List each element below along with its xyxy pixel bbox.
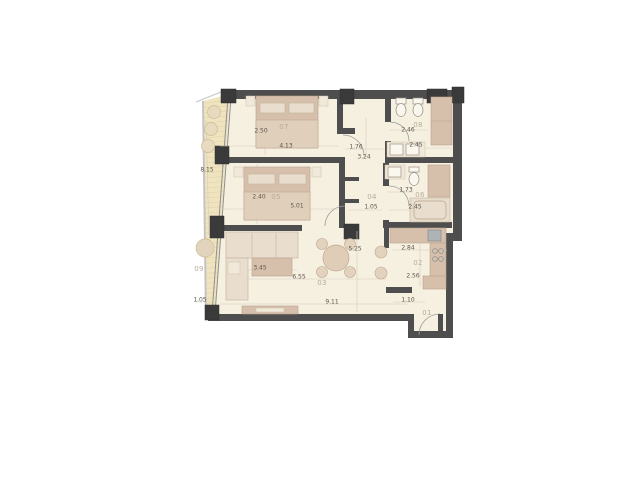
bidet-icon [413,98,423,117]
room-label-02: 02 [413,259,423,267]
bed-07-icon [246,96,328,148]
dim-173: 1.73 [399,187,412,194]
wardrobe-06-icon [428,165,450,197]
dim-911: 9.11 [325,299,338,306]
dim-256: 2.56 [406,273,419,280]
floor-plan-canvas: 2.50 4.13 07 2.46 2.45 08 1.76 3.24 1.05… [0,0,640,480]
side-table-icon [228,262,240,274]
sink-06-icon [385,165,405,179]
toilet-06-icon [409,167,419,186]
dim-240: 2.40 [252,194,265,201]
dim-345: 3.45 [253,265,266,272]
room-label-04: 04 [367,193,377,201]
toilet-icon [396,98,406,117]
dim-105-corridor: 1.05 [364,204,377,211]
dim-250: 2.50 [254,128,267,135]
dim-525: 5.25 [348,246,361,253]
dim-245-upper: 2.45 [409,142,422,149]
balcony-table-icon [196,239,214,257]
floor-plan-drawing [0,0,640,480]
dim-105-balcony: 1.05 [193,297,206,304]
room-label-01: 01 [422,309,432,317]
wardrobe-08-icon [431,97,452,145]
dim-245-lower: 2.45 [408,204,421,211]
dim-501: 5.01 [290,203,303,210]
tv-console-icon [242,306,298,314]
dim-324: 3.24 [357,154,370,161]
room-label-06: 06 [415,191,425,199]
room-label-09: 09 [194,265,204,273]
dim-413: 4.13 [279,143,292,150]
room-label-07: 07 [279,123,289,131]
dim-284: 2.84 [401,245,414,252]
room-label-05: 05 [271,193,281,201]
entry-door-leaf [438,314,443,335]
dim-815: 8.15 [200,167,213,174]
dim-110: 1.10 [401,297,414,304]
room-label-08: 08 [413,121,423,129]
room-label-03: 03 [317,279,327,287]
dim-176: 1.76 [349,144,362,151]
dim-655: 6.55 [292,274,305,281]
